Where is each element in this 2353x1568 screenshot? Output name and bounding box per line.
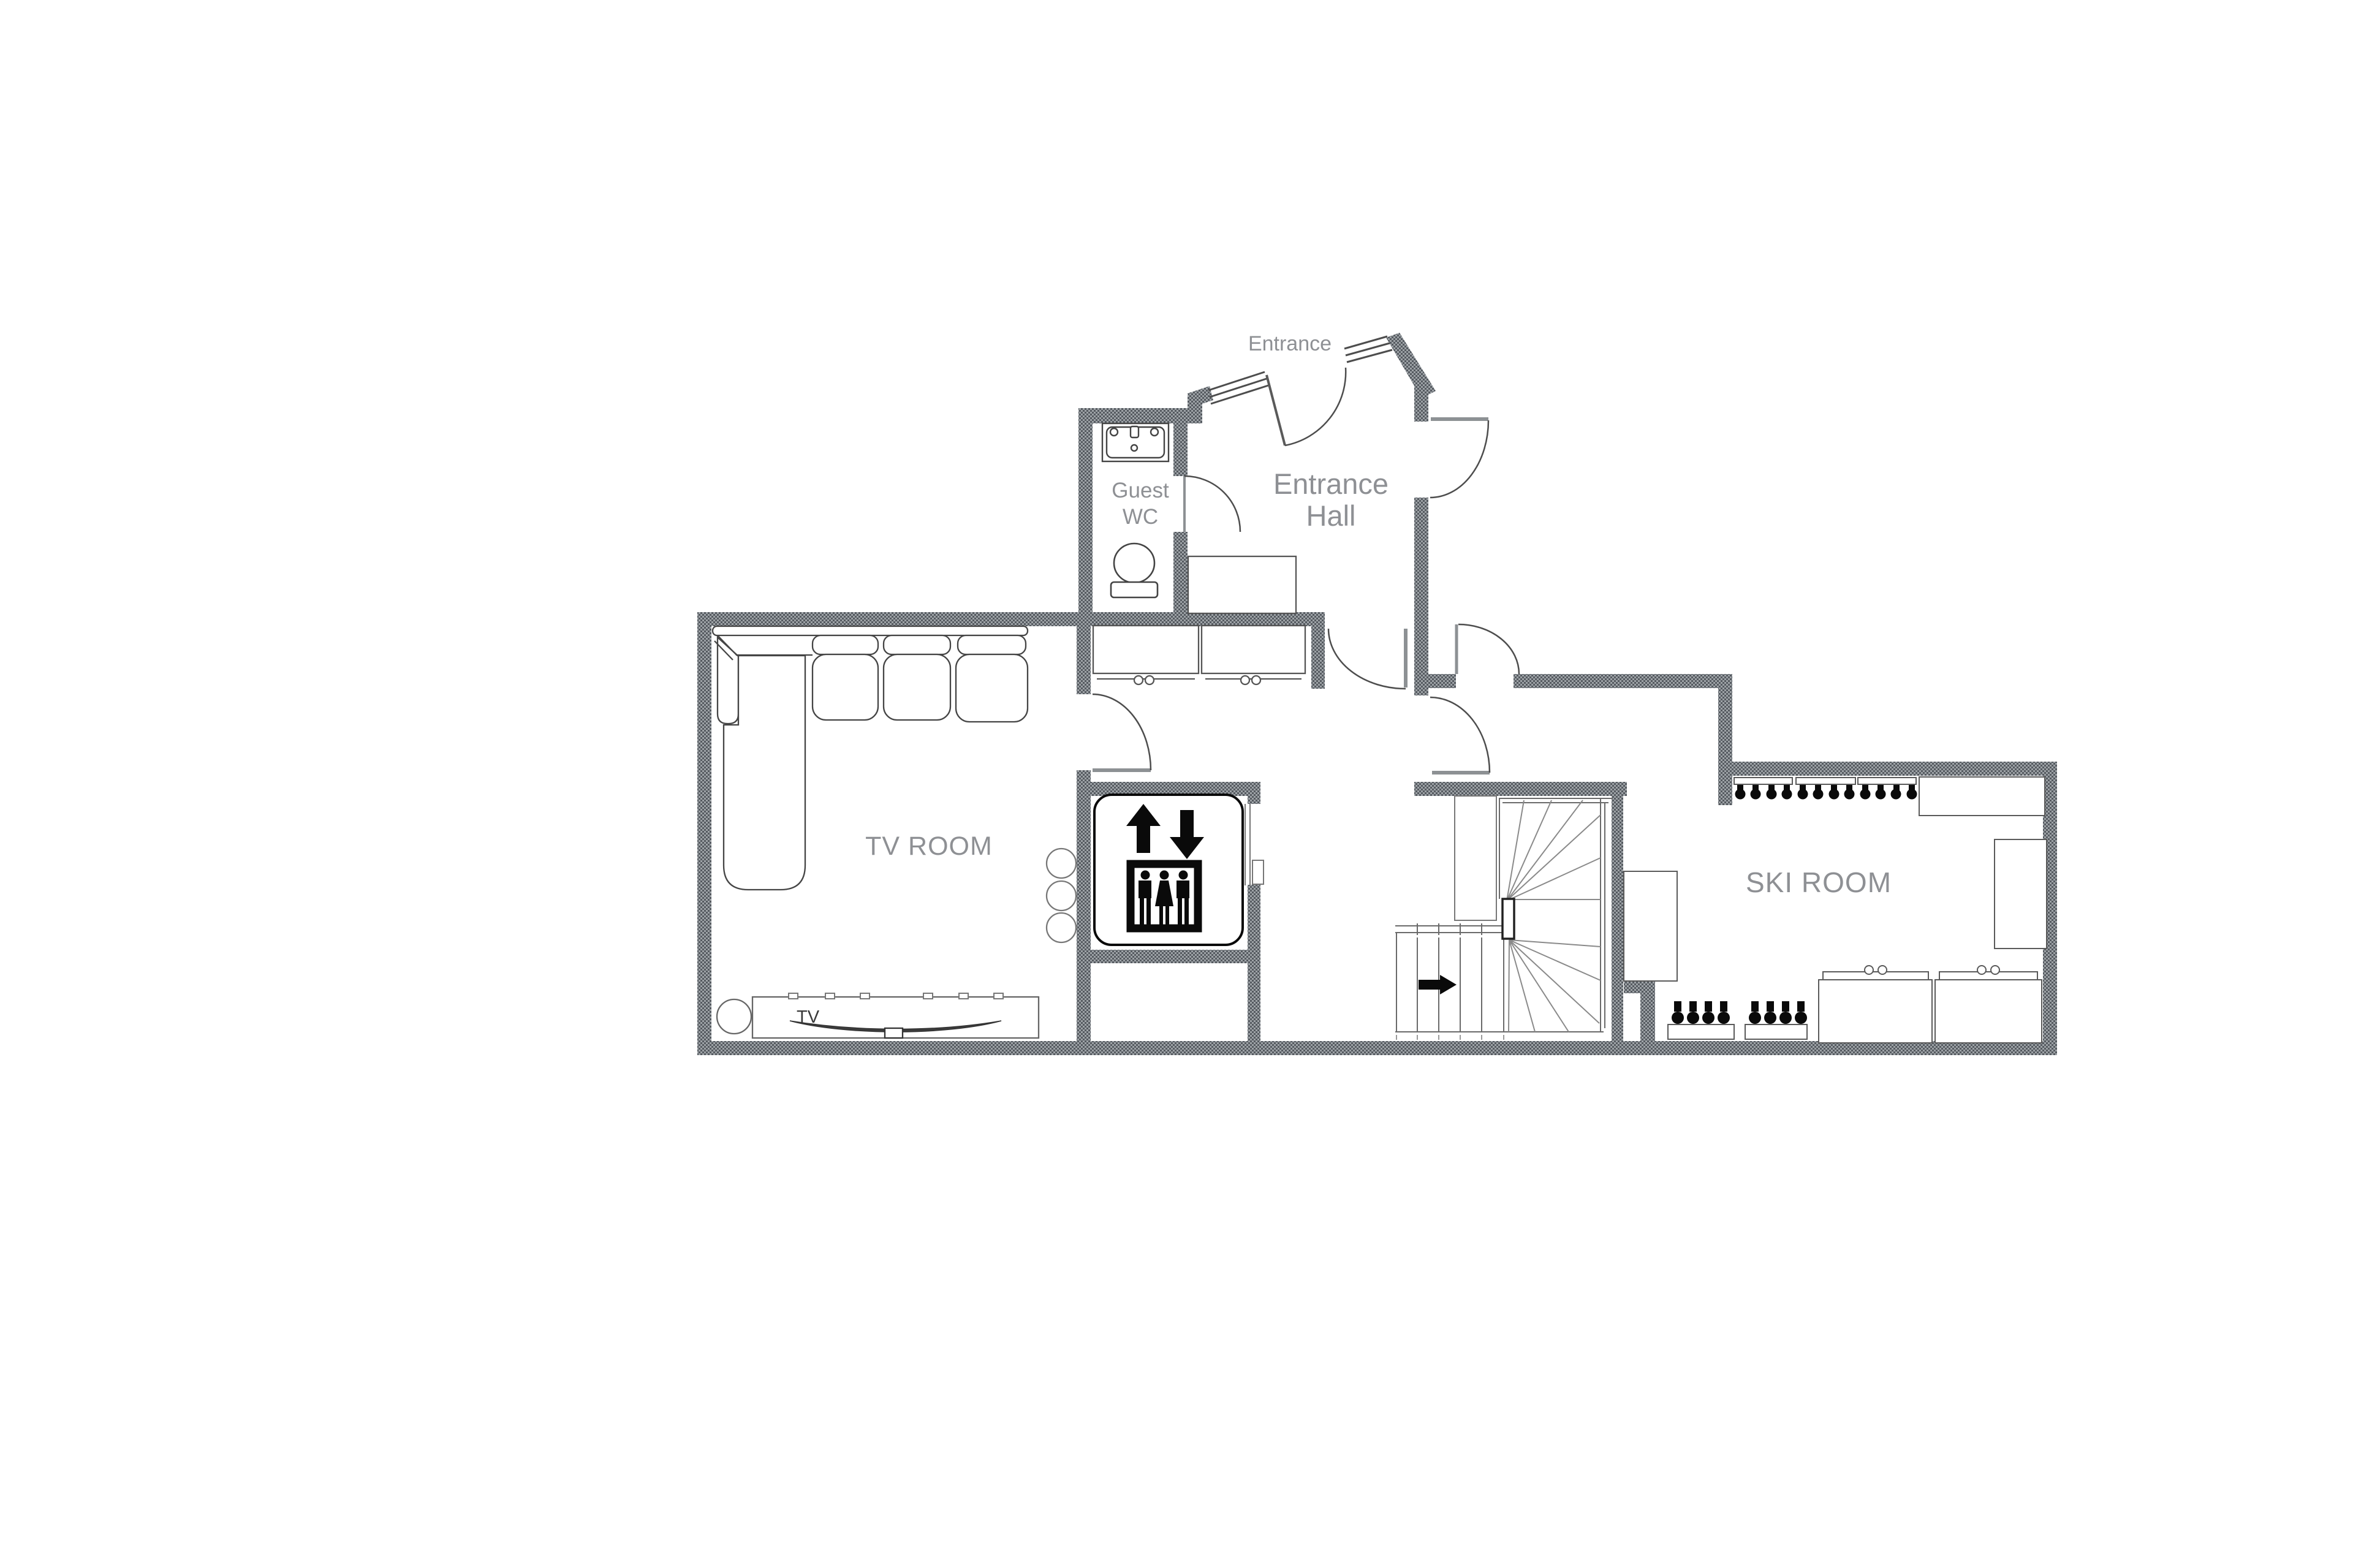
svg-text:Guest: Guest <box>1112 479 1169 502</box>
svg-text:Entrance: Entrance <box>1273 468 1389 500</box>
svg-text:TV ROOM: TV ROOM <box>865 831 993 861</box>
svg-text:WC: WC <box>1123 505 1158 529</box>
svg-text:SKI ROOM: SKI ROOM <box>1746 866 1892 898</box>
svg-text:Hall: Hall <box>1306 499 1356 532</box>
svg-text:TV: TV <box>797 1007 820 1027</box>
svg-text:Entrance: Entrance <box>1248 332 1332 355</box>
